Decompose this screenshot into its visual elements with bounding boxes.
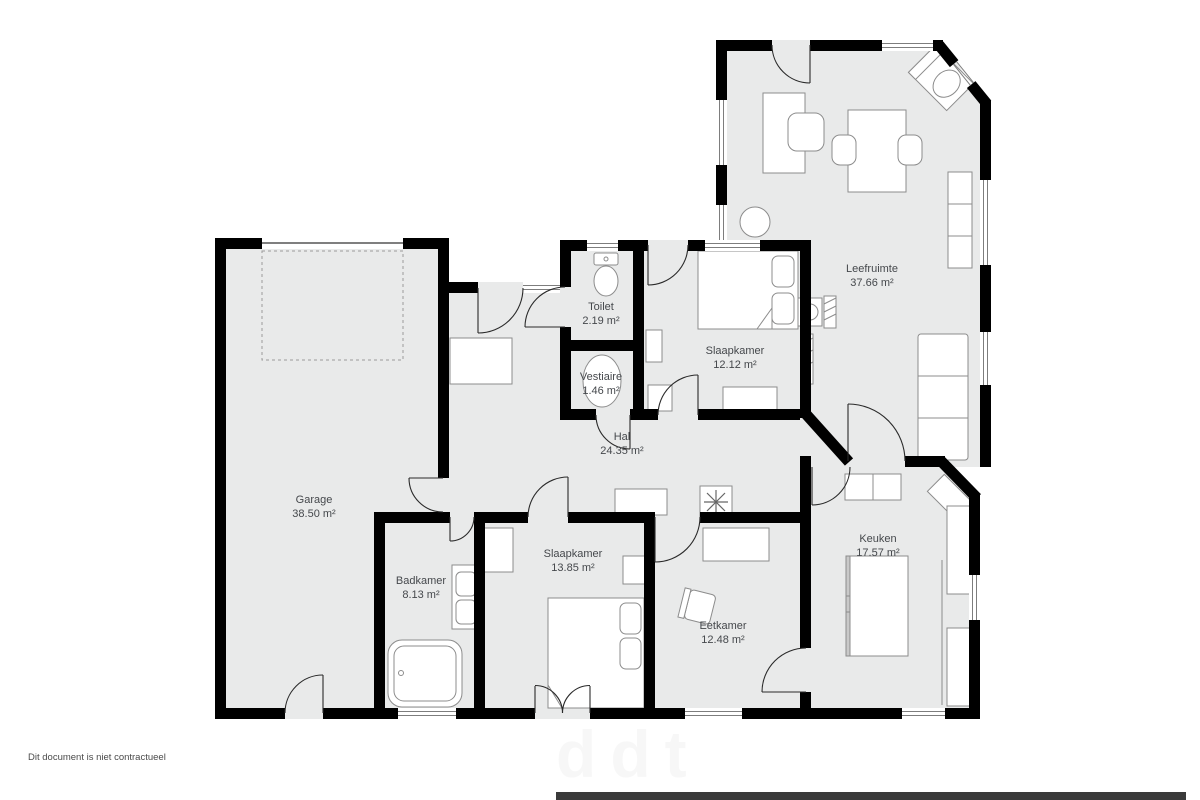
sideboard — [450, 338, 512, 384]
wall — [800, 456, 811, 648]
room-area: 24.35 m² — [600, 445, 644, 457]
chair-right — [898, 135, 922, 165]
wall — [969, 620, 980, 719]
room-area: 12.48 m² — [701, 634, 745, 646]
hall-bench — [615, 489, 667, 515]
room-name: Eetkamer — [699, 620, 746, 632]
watermark-cutoff-band — [556, 792, 1186, 800]
wall — [980, 385, 991, 467]
room-area: 37.66 m² — [850, 277, 894, 289]
wall — [980, 100, 991, 180]
wall — [633, 240, 644, 420]
wall — [630, 409, 644, 420]
dining-table-2 — [703, 528, 769, 561]
window-slaapkamer1 — [705, 240, 760, 251]
room-area: 12.12 m² — [713, 359, 757, 371]
wall — [485, 512, 528, 523]
wardrobe — [484, 528, 513, 572]
wall — [716, 40, 772, 51]
wall — [644, 409, 658, 420]
room-name: Hal — [614, 431, 631, 443]
room-name: Keuken — [859, 533, 896, 545]
wall — [800, 692, 811, 708]
watermark-text: ddt — [556, 716, 701, 792]
wall — [800, 251, 811, 418]
window-entrance — [523, 282, 560, 293]
wall — [644, 512, 655, 708]
side-table — [740, 207, 770, 237]
window-keuken-bottom — [902, 708, 945, 719]
window-leefruimte-right-1 — [980, 180, 991, 265]
wall — [969, 494, 980, 575]
wall — [698, 409, 800, 420]
wall — [456, 708, 535, 719]
room-area: 8.13 m² — [402, 589, 440, 601]
radiator-tall — [948, 172, 972, 268]
dining-table — [848, 110, 906, 192]
window-leefruimte-left-2 — [716, 205, 727, 240]
toilet-fixture — [594, 253, 618, 296]
desk-chair — [788, 113, 824, 151]
window-keuken-right — [969, 575, 980, 620]
room-name: Leefruimte — [846, 263, 898, 275]
floorplan-svg: Leefruimte 37.66 m² Slaapkamer 12.12 m² … — [0, 0, 1200, 800]
room-area: 17.57 m² — [856, 547, 900, 559]
window-leefruimte-right-2 — [980, 332, 991, 385]
room-area: 2.19 m² — [582, 315, 620, 327]
kitchen-island — [846, 556, 908, 656]
sofa — [918, 334, 968, 460]
room-name: Vestiaire — [580, 371, 622, 383]
wall — [760, 240, 811, 251]
wall — [568, 512, 655, 523]
window-leefruimte-left-1 — [716, 100, 727, 165]
low-cabinet — [723, 387, 777, 411]
bed-slaapkamer2 — [548, 598, 644, 708]
wall — [700, 512, 800, 523]
wall — [560, 409, 596, 420]
wall — [374, 512, 450, 523]
garage-gate — [262, 238, 403, 249]
wall — [810, 40, 882, 51]
wall — [742, 708, 902, 719]
wall — [716, 165, 727, 205]
room-name: Toilet — [588, 301, 614, 313]
bathtub — [388, 640, 462, 707]
room-name: Slaapkamer — [706, 345, 765, 357]
room-area: 38.50 m² — [292, 508, 336, 520]
wall — [688, 240, 705, 251]
room-area: 13.85 m² — [551, 562, 595, 574]
wall — [215, 708, 285, 719]
wall — [560, 340, 644, 351]
chair-left — [832, 135, 856, 165]
wall — [560, 240, 587, 251]
wall — [215, 238, 226, 719]
wall — [443, 282, 478, 293]
room-name: Slaapkamer — [544, 548, 603, 560]
wall — [980, 265, 991, 332]
disclaimer-text: Dit document is niet contractueel — [28, 752, 166, 763]
bed-slaapkamer1 — [698, 251, 798, 329]
room-name: Badkamer — [396, 575, 446, 587]
wall — [403, 238, 449, 249]
wall — [385, 708, 398, 719]
window-toilet — [587, 240, 618, 251]
wall — [945, 708, 980, 719]
dresser — [646, 330, 662, 362]
window-leefruimte-top — [882, 40, 933, 51]
room-name: Garage — [296, 494, 333, 506]
room-area: 1.46 m² — [582, 385, 620, 397]
kitchen-cabinets-top — [845, 474, 901, 500]
floorplan-page: Leefruimte 37.66 m² Slaapkamer 12.12 m² … — [0, 0, 1200, 800]
wall — [474, 512, 485, 708]
wall — [374, 512, 385, 719]
window-badkamer-bottom — [398, 708, 456, 719]
